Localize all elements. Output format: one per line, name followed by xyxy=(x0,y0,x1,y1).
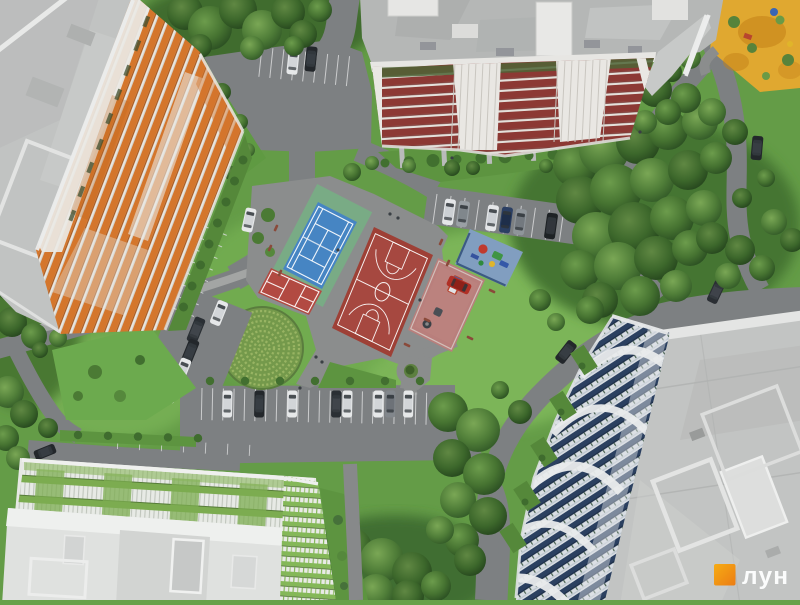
svg-text:лун: лун xyxy=(742,563,789,590)
